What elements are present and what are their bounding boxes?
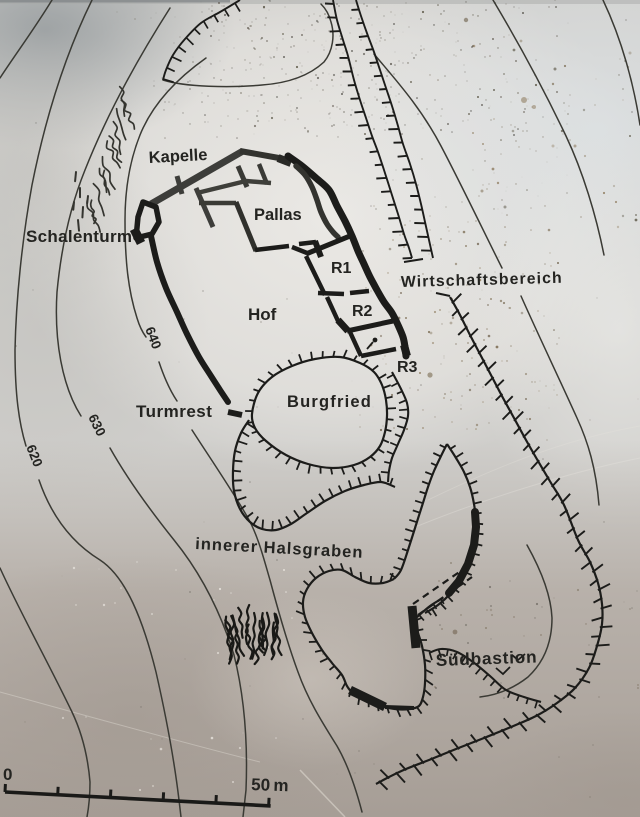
svg-text:Südbastion: Südbastion — [435, 646, 537, 670]
svg-text:Pallas: Pallas — [254, 206, 302, 224]
svg-text:Burgfried: Burgfried — [287, 393, 372, 411]
svg-text:R2: R2 — [352, 303, 373, 320]
svg-text:0: 0 — [3, 765, 12, 784]
svg-text:Turmrest: Turmrest — [136, 402, 212, 421]
svg-text:50 m: 50 m — [251, 775, 289, 795]
svg-text:R1: R1 — [331, 260, 352, 277]
svg-text:Kapelle: Kapelle — [148, 146, 208, 167]
svg-text:Schalenturm: Schalenturm — [26, 227, 132, 246]
svg-text:R3: R3 — [397, 359, 418, 376]
svg-text:Hof: Hof — [248, 305, 277, 324]
